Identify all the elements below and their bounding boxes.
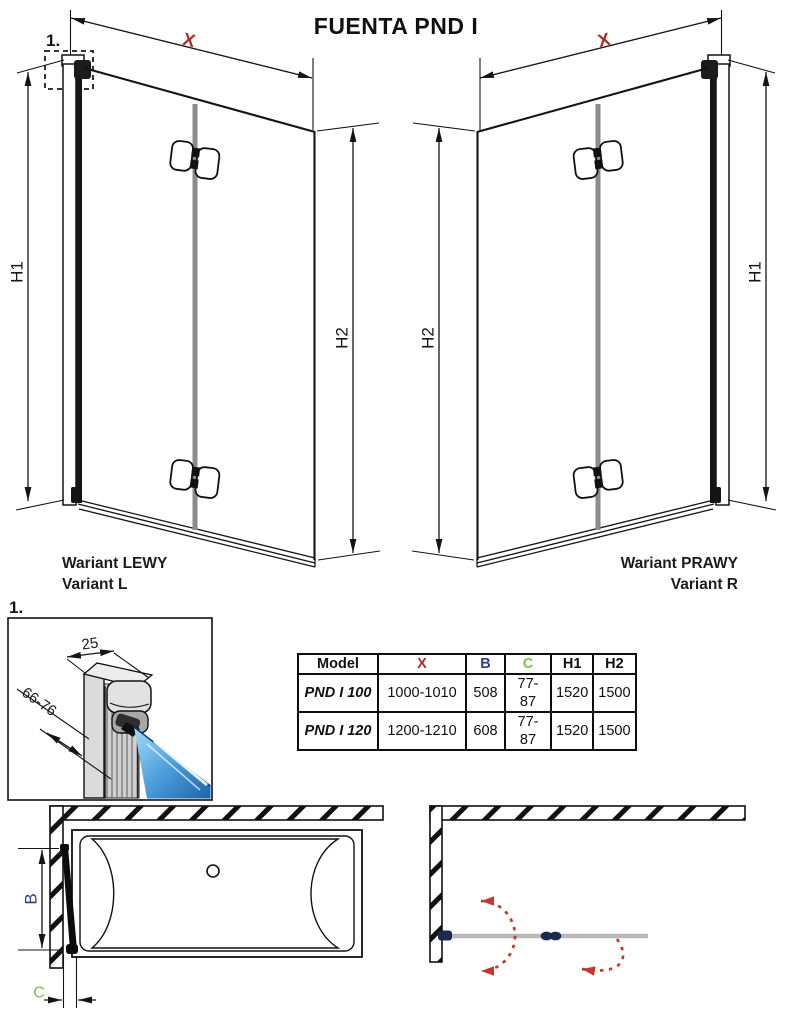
bathtub-outer <box>72 830 362 957</box>
cell-h1: 1520 <box>551 674 593 712</box>
wall-hinge-marker <box>438 931 452 941</box>
header-h2: H2 <box>593 654 635 674</box>
screen-top-cap <box>60 844 69 851</box>
spec-table-row: PND I 120 1200-1210 608 77-87 1520 1500 <box>298 712 636 750</box>
cell-model: PND I 120 <box>298 712 378 750</box>
cell-c: 77-87 <box>505 712 551 750</box>
spec-table: Model X B C H1 H2 PND I 100 1000-1010 50… <box>297 653 637 751</box>
header-b: B <box>466 654 505 674</box>
dim-b-label: B <box>22 893 41 904</box>
center-hinge-marker <box>550 932 562 941</box>
cell-h2: 1500 <box>593 712 635 750</box>
h1-extension-line <box>728 500 776 510</box>
h2-extension-line <box>413 123 475 131</box>
h1-extension-line <box>728 60 775 73</box>
drawing-canvas: X 1. <box>0 0 792 1018</box>
h1-extension-line <box>16 500 64 510</box>
header-model: Model <box>298 654 378 674</box>
screen-bottom-foot <box>66 944 78 954</box>
diagram-variant-left: X 1. <box>8 10 381 567</box>
cell-h1: 1520 <box>551 712 593 750</box>
variant-left-line2: Variant L <box>62 574 167 595</box>
wall-profile-glass-strip <box>710 66 716 503</box>
h2-extension-line <box>317 123 379 131</box>
glass-top-edge <box>477 68 708 132</box>
header-x: X <box>378 654 466 674</box>
wall-profile <box>716 64 729 505</box>
cell-b: 608 <box>466 712 505 750</box>
wall-slab <box>84 674 104 798</box>
h2-extension-line <box>412 551 474 560</box>
dim-x-label: X <box>596 29 612 51</box>
cell-model: PND I 100 <box>298 674 378 712</box>
wall-profile <box>63 64 76 505</box>
drain <box>207 865 219 877</box>
dim-h1-label: H1 <box>8 261 27 283</box>
h2-extension-line <box>318 551 380 560</box>
dim-h2-label: H2 <box>419 327 438 349</box>
fold-swing-top-view <box>430 806 745 971</box>
variant-right-line2: Variant R <box>621 574 738 595</box>
variant-left-line1: Wariant LEWY <box>62 553 167 574</box>
cell-b: 508 <box>466 674 505 712</box>
spec-table-row: PND I 100 1000-1010 508 77-87 1520 1500 <box>298 674 636 712</box>
detail-width-label: 25 <box>81 634 100 653</box>
technical-drawing-page: FUENTA PND I X <box>0 0 792 1018</box>
bathtub-top-view: B C <box>18 806 383 1008</box>
wall-top <box>50 806 383 820</box>
header-h1: H1 <box>551 654 593 674</box>
door-swing-arc <box>582 939 623 970</box>
clamp-upper <box>107 681 151 713</box>
h1-extension-line <box>17 60 64 73</box>
variant-right-caption: Wariant PRAWY Variant R <box>621 553 738 595</box>
variant-right-line1: Wariant PRAWY <box>621 553 738 574</box>
dim-x-label: X <box>181 29 197 51</box>
detail-view-1: 1. <box>8 598 212 800</box>
variant-left-caption: Wariant LEWY Variant L <box>62 553 167 595</box>
cell-x: 1200-1210 <box>378 712 466 750</box>
dim-h1-label: H1 <box>746 261 765 283</box>
glass-top-edge <box>84 68 315 132</box>
wall-profile-glass-strip <box>76 66 82 503</box>
cell-c: 77-87 <box>505 674 551 712</box>
detail-view-label: 1. <box>9 598 23 617</box>
diagram-variant-right: X <box>412 10 776 567</box>
cell-x: 1000-1010 <box>378 674 466 712</box>
dim-c-label: C <box>33 985 45 1002</box>
dim-h2-label: H2 <box>333 327 352 349</box>
header-c: C <box>505 654 551 674</box>
wall-top <box>430 806 745 820</box>
wall-left <box>50 806 63 968</box>
spec-table-header-row: Model X B C H1 H2 <box>298 654 636 674</box>
detail-ref-label: 1. <box>46 31 60 50</box>
cell-h2: 1500 <box>593 674 635 712</box>
